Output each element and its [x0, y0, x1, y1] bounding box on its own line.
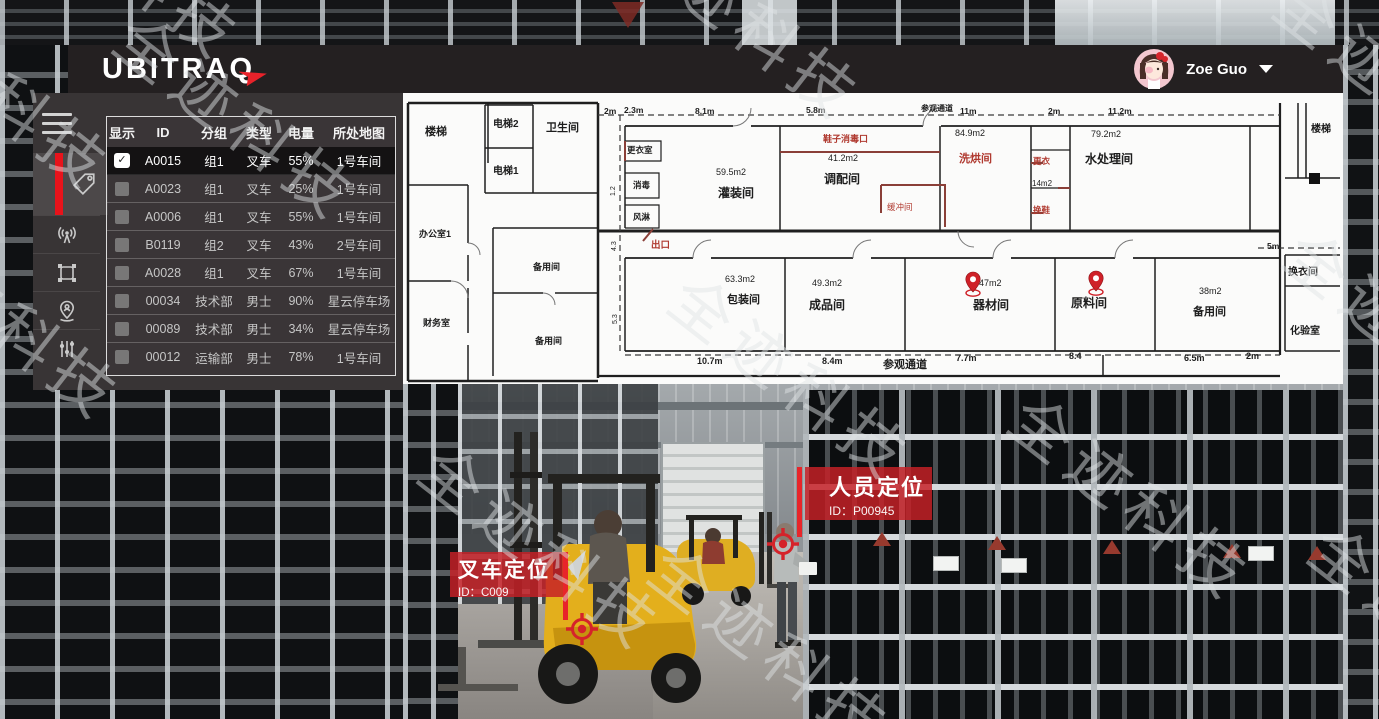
plan-label: 5.3	[612, 314, 619, 324]
shelf-label-card	[1001, 558, 1027, 573]
table-row[interactable]: 00034技术部男士90%星云停车场	[107, 287, 395, 315]
cell-type: 叉车	[239, 151, 279, 170]
cell-map: 星云停车场	[323, 319, 395, 338]
plan-label: 84.9m2	[955, 129, 985, 138]
cell-type: 叉车	[239, 179, 279, 198]
cell-map: 1号车间	[323, 348, 395, 367]
skylight-small	[742, 0, 797, 45]
cell-group: 组2	[189, 235, 239, 254]
plan-label: 电梯1	[493, 167, 519, 177]
table-row[interactable]: A0006组1叉车55%1号车间	[107, 203, 395, 231]
sidebar-nav	[33, 153, 100, 367]
table-header: 显示ID分组类型电量所处地图	[107, 117, 395, 147]
plan-label: 8.4	[1069, 352, 1082, 361]
plan-label: 楼梯	[1311, 125, 1331, 135]
plan-label: 出口	[651, 241, 670, 251]
plan-label: 14m2	[1032, 180, 1052, 188]
avatar[interactable]	[1134, 49, 1174, 89]
app-logo: UBITRAQ	[102, 53, 255, 86]
plan-label: 办公室1	[419, 230, 451, 239]
map-pin-icon[interactable]	[1086, 270, 1106, 301]
plan-label: 换衣间	[1288, 268, 1318, 278]
forklift-label-id: ID：C009	[458, 584, 563, 600]
cell-battery: 90%	[279, 294, 323, 308]
sidebar-item-signal[interactable]	[33, 215, 100, 253]
plan-label: 63.3m2	[725, 275, 755, 284]
row-checkbox[interactable]	[115, 266, 129, 280]
plan-label: 7.7m	[956, 354, 977, 363]
cell-type: 男士	[239, 291, 279, 310]
cell-map: 2号车间	[323, 235, 395, 254]
plan-label: 参观通道	[921, 105, 953, 113]
cell-id: A0028	[137, 266, 189, 280]
plan-label: 楼梯	[425, 127, 447, 138]
rack-cap	[988, 536, 1006, 550]
cell-map: 星云停车场	[323, 291, 395, 310]
plan-label: 化验室	[1290, 327, 1320, 337]
plan-label: 备用间	[1193, 307, 1226, 318]
shelf-label-card	[1248, 546, 1274, 561]
header: UBITRAQ Zoe Guo	[68, 45, 1343, 93]
plan-label: 79.2m2	[1091, 130, 1121, 139]
cell-id: 00012	[137, 350, 189, 364]
cell-battery: 34%	[279, 322, 323, 336]
plan-label: 备用间	[535, 337, 562, 346]
plan-label: 11m	[960, 107, 977, 116]
plan-label: 调配间	[824, 173, 860, 185]
row-checkbox[interactable]	[115, 182, 129, 196]
person-label-title: 人员定位	[829, 470, 932, 502]
cell-battery: 25%	[279, 182, 323, 196]
plan-label: 11.2m	[1108, 107, 1132, 116]
plan-label: 2.3m	[624, 106, 643, 115]
logo-arrow-icon	[239, 66, 269, 86]
map-pin-icon[interactable]	[963, 271, 983, 302]
plan-label: 参观通道	[883, 360, 927, 371]
table-row[interactable]: A0023组1叉车25%1号车间	[107, 175, 395, 203]
table-row[interactable]: B0119组2叉车43%2号车间	[107, 231, 395, 259]
column-header: 所处地图	[323, 123, 395, 142]
plan-label: 8.1m	[695, 107, 714, 116]
cell-id: A0023	[137, 182, 189, 196]
sidebar-item-person-location[interactable]	[33, 291, 100, 329]
person-crosshair-icon[interactable]	[766, 527, 800, 566]
row-checkbox[interactable]	[115, 294, 129, 308]
cell-group: 技术部	[189, 291, 239, 310]
plan-label: 备用间	[533, 263, 560, 272]
user-name: Zoe Guo	[1186, 61, 1247, 78]
device-table-panel: 显示ID分组类型电量所处地图 ✓A0015组1叉车55%1号车间A0023组1叉…	[106, 116, 396, 376]
plan-label: 洗烘间	[959, 154, 992, 165]
rack-cap	[1223, 544, 1241, 558]
column-header: ID	[137, 125, 189, 140]
cell-group: 组1	[189, 207, 239, 226]
shelf-label-card	[933, 556, 959, 571]
area-select-icon	[55, 261, 79, 285]
table-row[interactable]: A0028组1叉车67%1号车间	[107, 259, 395, 287]
cell-type: 男士	[239, 319, 279, 338]
plan-label: 缓冲间	[887, 203, 913, 212]
cell-id: A0006	[137, 210, 189, 224]
column-header: 类型	[239, 123, 279, 142]
rack-cap	[1308, 546, 1326, 560]
plan-label: 38m2	[1199, 287, 1222, 296]
logo-text: UBITRAQ	[102, 53, 255, 85]
plan-label: 5m	[1267, 242, 1279, 251]
plan-label: 59.5m2	[716, 168, 746, 177]
row-checkbox[interactable]	[115, 350, 129, 364]
plan-label: 财务室	[423, 319, 450, 328]
cell-battery: 55%	[279, 154, 323, 168]
plan-label: 更衣室	[627, 146, 653, 155]
plan-label: 1.2	[610, 186, 617, 196]
row-checkbox[interactable]	[115, 210, 129, 224]
plan-label: 成品间	[809, 299, 845, 311]
cell-map: 1号车间	[323, 151, 395, 170]
plan-label: 8.4m	[822, 357, 843, 366]
sidebar-item-area[interactable]	[33, 253, 100, 291]
plan-label: 卫生间	[546, 123, 579, 134]
plan-label: 6.5m	[1184, 354, 1205, 363]
cell-battery: 55%	[279, 210, 323, 224]
rack-cap	[873, 532, 891, 546]
plan-label: 4.3	[611, 241, 618, 251]
user-menu[interactable]: Zoe Guo	[1134, 47, 1273, 91]
sidebar-item-tags[interactable]	[33, 153, 108, 215]
forklift-crosshair-icon[interactable]	[565, 612, 599, 651]
plan-label: 49.3m2	[812, 279, 842, 288]
plan-label: 更衣	[1033, 157, 1050, 166]
table-body: ✓A0015组1叉车55%1号车间A0023组1叉车25%1号车间A0006组1…	[107, 147, 395, 371]
sidebar-item-stats[interactable]	[33, 329, 100, 367]
menu-icon[interactable]	[42, 113, 72, 140]
column-header: 分组	[189, 123, 239, 142]
floorplan-map[interactable]: 楼梯电梯2电梯1卫生间办公室1财务室备用间备用间更衣室消毒风淋出口59.5m2灌…	[403, 93, 1343, 384]
table-row[interactable]: 00089技术部男士34%星云停车场	[107, 315, 395, 343]
cell-type: 叉车	[239, 263, 279, 282]
stats-slider-icon	[55, 337, 79, 361]
cell-map: 1号车间	[323, 263, 395, 282]
tire-rack-right-edge	[1343, 45, 1379, 719]
cell-id: 00089	[137, 322, 189, 336]
cell-battery: 78%	[279, 350, 323, 364]
row-checkbox[interactable]: ✓	[114, 153, 130, 168]
plan-label: 5.8m	[806, 106, 825, 115]
column-header: 显示	[107, 123, 137, 142]
cell-map: 1号车间	[323, 179, 395, 198]
cell-type: 叉车	[239, 235, 279, 254]
column-header: 电量	[279, 123, 323, 142]
cell-group: 技术部	[189, 319, 239, 338]
table-row[interactable]: 00012运输部男士78%1号车间	[107, 343, 395, 371]
signal-icon	[55, 223, 79, 247]
cell-group: 组1	[189, 151, 239, 170]
person-label-id: ID：P00945	[829, 502, 932, 519]
plan-label: 41.2m2	[828, 154, 858, 163]
cell-group: 运输部	[189, 348, 239, 367]
chevron-down-icon[interactable]	[1259, 65, 1273, 73]
cell-type: 叉车	[239, 207, 279, 226]
cell-id: B0119	[137, 238, 189, 252]
cell-battery: 43%	[279, 238, 323, 252]
skylight	[1055, 0, 1335, 45]
forklift-label-title: 叉车定位	[458, 554, 563, 584]
row-checkbox[interactable]	[115, 238, 129, 252]
plan-label: 消毒	[633, 181, 650, 190]
plan-label: 包装间	[727, 295, 760, 306]
cell-map: 1号车间	[323, 207, 395, 226]
plan-label: 灌装间	[718, 187, 754, 199]
plan-label: 电梯2	[493, 120, 519, 130]
cell-id: A0015	[137, 154, 189, 168]
plan-label: 2m	[1048, 107, 1060, 116]
tag-icon	[71, 171, 97, 197]
table-row[interactable]: ✓A0015组1叉车55%1号车间	[107, 147, 395, 175]
cell-group: 组1	[189, 263, 239, 282]
roof-marker	[612, 2, 644, 28]
plan-label: 鞋子消毒口	[823, 135, 868, 144]
app-root: UBITRAQ Zoe Guo	[0, 0, 1379, 719]
plan-label: 10.7m	[697, 357, 723, 366]
forklift-pointer-line	[563, 552, 568, 620]
rack-cap	[1103, 540, 1121, 554]
plan-label: 风淋	[633, 213, 650, 222]
plan-label: 水处理间	[1085, 153, 1133, 165]
cell-type: 男士	[239, 348, 279, 367]
plan-label: 换鞋	[1033, 206, 1050, 215]
cell-id: 00034	[137, 294, 189, 308]
cell-battery: 67%	[279, 266, 323, 280]
person-location-icon	[55, 299, 79, 323]
cell-group: 组1	[189, 179, 239, 198]
plan-label: 2m	[1246, 352, 1259, 361]
row-checkbox[interactable]	[115, 322, 129, 336]
plan-label: 2m	[604, 107, 616, 116]
